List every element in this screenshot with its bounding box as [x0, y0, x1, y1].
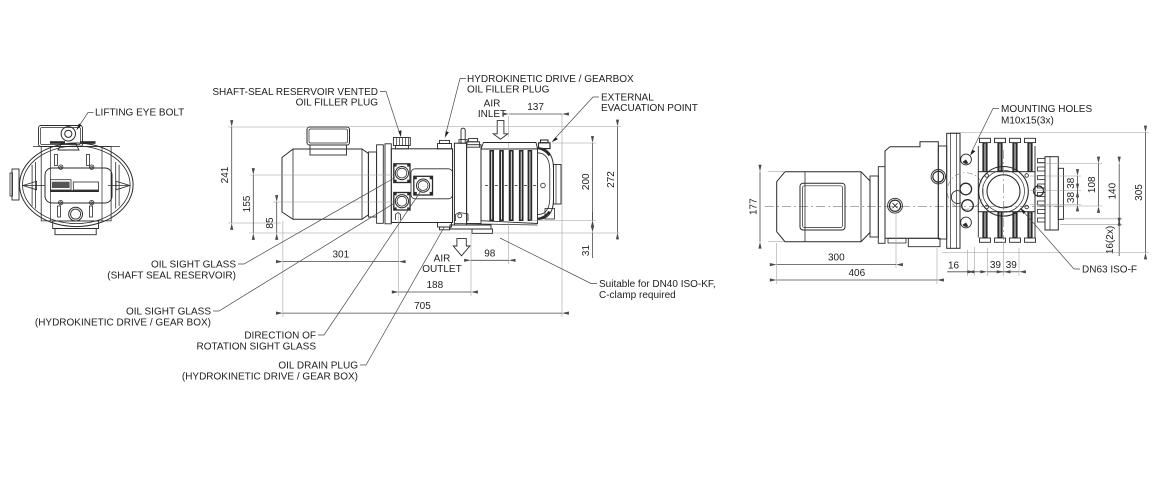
- svg-text:OIL DRAIN PLUG: OIL DRAIN PLUG: [278, 361, 358, 372]
- svg-text:OIL FILLER PLUG: OIL FILLER PLUG: [296, 98, 379, 109]
- svg-text:LIFTING EYE BOLT: LIFTING EYE BOLT: [95, 108, 184, 119]
- svg-text:300: 300: [828, 253, 845, 264]
- svg-text:38: 38: [1066, 177, 1077, 189]
- svg-text:(HYDROKINETIC DRIVE / GEAR BOX: (HYDROKINETIC DRIVE / GEAR BOX): [35, 318, 211, 329]
- svg-text:272: 272: [606, 171, 617, 188]
- svg-text:16: 16: [948, 260, 960, 271]
- svg-text:AIR: AIR: [484, 98, 501, 109]
- svg-text:705: 705: [414, 301, 431, 312]
- svg-text:16(2x): 16(2x): [1105, 226, 1116, 254]
- svg-text:HYDROKINETIC DRIVE / GEARBOX: HYDROKINETIC DRIVE / GEARBOX: [467, 74, 634, 85]
- svg-text:OIL FILLER PLUG: OIL FILLER PLUG: [467, 85, 550, 96]
- svg-text:(SHAFT SEAL RESERVOIR): (SHAFT SEAL RESERVOIR): [107, 271, 236, 282]
- svg-text:MOUNTING HOLES: MOUNTING HOLES: [1001, 104, 1092, 115]
- svg-text:ROTATION SIGHT GLASS: ROTATION SIGHT GLASS: [197, 342, 317, 353]
- svg-text:38: 38: [1066, 192, 1077, 204]
- svg-text:39: 39: [1006, 260, 1018, 271]
- svg-text:M10x15(3x): M10x15(3x): [1001, 116, 1054, 127]
- svg-text:DIRECTION OF: DIRECTION OF: [244, 331, 316, 342]
- svg-text:C-clamp required: C-clamp required: [599, 290, 676, 301]
- svg-text:DN63 ISO-F: DN63 ISO-F: [1082, 265, 1137, 276]
- svg-text:39: 39: [990, 260, 1002, 271]
- svg-text:SHAFT-SEAL RESERVOIR VENTED: SHAFT-SEAL RESERVOIR VENTED: [212, 87, 378, 98]
- svg-text:(HYDROKINETIC DRIVE / GEAR BOX: (HYDROKINETIC DRIVE / GEAR BOX): [182, 372, 358, 383]
- svg-text:EXTERNAL: EXTERNAL: [601, 93, 654, 104]
- svg-text:INLET: INLET: [478, 109, 506, 120]
- svg-text:OIL SIGHT GLASS: OIL SIGHT GLASS: [151, 260, 236, 271]
- svg-text:301: 301: [332, 250, 349, 261]
- svg-text:177: 177: [749, 198, 760, 215]
- svg-text:200: 200: [581, 173, 592, 190]
- svg-text:188: 188: [427, 280, 444, 291]
- svg-text:OIL SIGHT GLASS: OIL SIGHT GLASS: [126, 307, 211, 318]
- svg-text:137: 137: [527, 102, 544, 113]
- svg-text:140: 140: [1108, 182, 1119, 199]
- svg-text:241: 241: [220, 166, 231, 183]
- svg-text:406: 406: [849, 268, 866, 279]
- svg-text:305: 305: [1134, 184, 1145, 201]
- svg-text:85: 85: [265, 217, 276, 229]
- svg-text:Suitable for DN40 ISO-KF,: Suitable for DN40 ISO-KF,: [599, 279, 716, 290]
- svg-text:31: 31: [581, 245, 592, 257]
- svg-text:EVACUATION POINT: EVACUATION POINT: [601, 103, 698, 114]
- svg-text:98: 98: [484, 248, 496, 259]
- svg-text:AIR: AIR: [434, 253, 451, 264]
- svg-text:155: 155: [242, 195, 253, 212]
- svg-text:OUTLET: OUTLET: [422, 264, 461, 275]
- svg-text:108: 108: [1087, 176, 1098, 193]
